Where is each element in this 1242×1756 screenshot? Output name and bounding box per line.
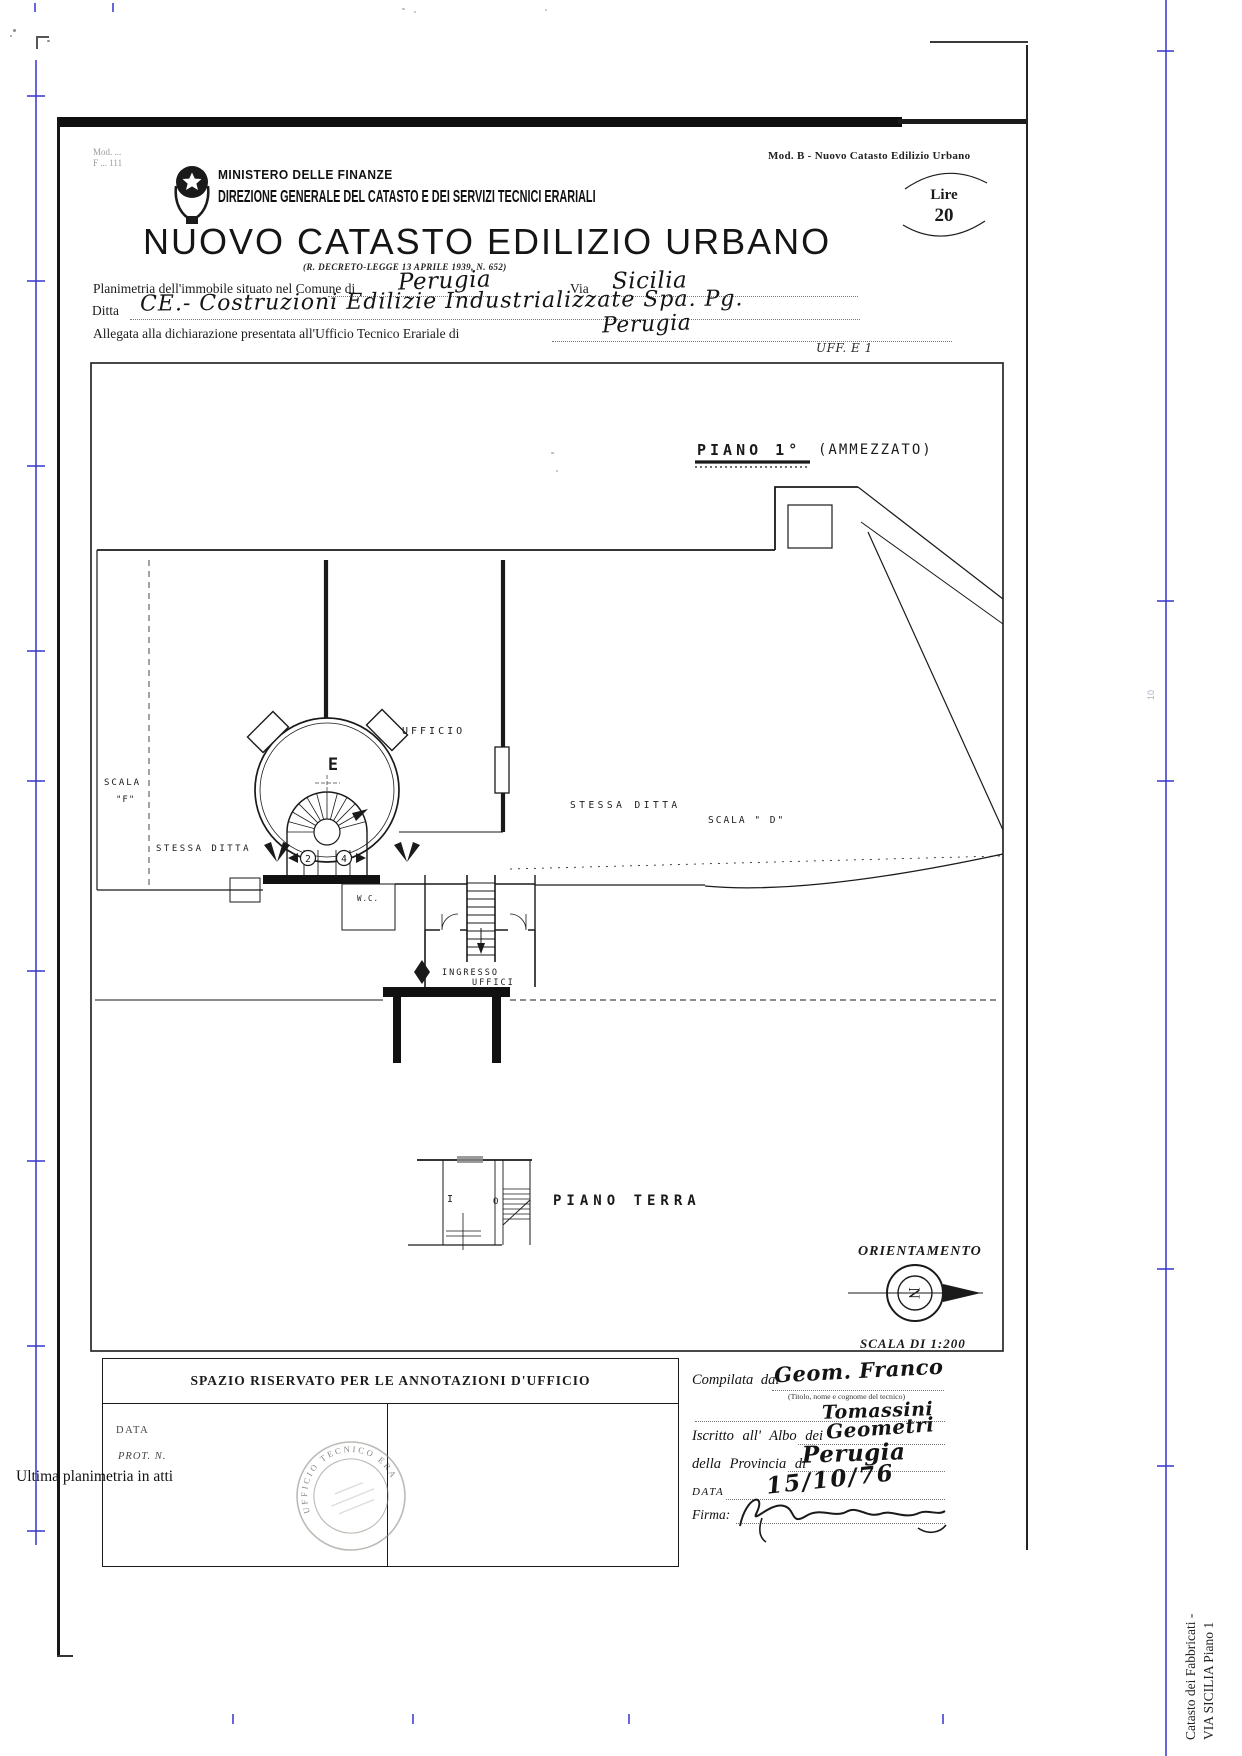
scan-speck (414, 11, 416, 13)
scan-speck (545, 9, 547, 11)
document-title: NUOVO CATASTO EDILIZIO URBANO (143, 221, 831, 263)
left-registration-tick (27, 1345, 45, 1347)
stessa-ditta-left-label: STESSA DITTA (156, 844, 251, 854)
annotations-box-header: SPAZIO RISERVATO PER LE ANNOTAZIONI D'UF… (103, 1359, 678, 1404)
right-ruler-tick (1157, 1465, 1174, 1467)
ditta-dotted-line (130, 319, 860, 320)
scala-f-label-line2: "F" (116, 795, 135, 805)
room-e-label: E (328, 755, 338, 775)
piano-terra-label: PIANO TERRA (553, 1193, 701, 1209)
entry-door-symbol (414, 960, 430, 984)
left-registration-tick (27, 95, 45, 97)
wc-room (342, 884, 395, 930)
directorate-name: DIREZIONE GENERALE DEL CATASTO E DEI SER… (218, 186, 596, 207)
floor-plan-drawing: PIANO 1° (AMMEZZATO) (90, 362, 1004, 1352)
allegata-dotted-line (552, 341, 952, 342)
model-number-line2: F ... 111 (93, 158, 122, 169)
state-emblem-icon (170, 156, 214, 226)
right-ruler-tick (1157, 50, 1174, 52)
office-round-stamp: UFFICIO TECNICO ERARIALE (293, 1438, 415, 1558)
orientation-title: ORIENTAMENTO (858, 1244, 982, 1259)
compass-north-letter: N (905, 1287, 922, 1299)
scala-f-label-line1: SCALA (104, 778, 141, 788)
bottom-registration-tick (628, 1714, 630, 1724)
piano-terra-plan (408, 1160, 532, 1250)
scan-speck (402, 8, 405, 10)
lower-wall-left (393, 997, 401, 1063)
compilata-label: Compilata dal (692, 1372, 779, 1389)
allegata-value: Perugia (602, 310, 692, 338)
annotations-prot-label: PROT. N. (118, 1451, 166, 1462)
piano-terra-i-label: I (447, 1194, 453, 1205)
bottom-registration-tick (942, 1714, 944, 1724)
model-number-line1: Mod. ... (93, 147, 122, 158)
wc-label: W.C. (357, 894, 379, 903)
faint-margin-annotation: 10 (1146, 690, 1156, 700)
left-registration-tick (27, 970, 45, 972)
stessa-ditta-center-label: STESSA DITTA (570, 800, 681, 811)
compass: N (848, 1265, 983, 1321)
bottom-registration-tick (232, 1714, 234, 1724)
arrow-left-icon (288, 853, 298, 863)
floor-title-suffix: (AMMEZZATO) (818, 442, 933, 458)
document-top-border (57, 117, 902, 127)
ingresso-label-line2: UFFICI (472, 978, 515, 988)
ingresso-label-line1: INGRESSO (442, 968, 499, 978)
scan-speck (47, 40, 50, 42)
left-registration-line (35, 60, 37, 1545)
annotations-data-label: DATA (116, 1425, 149, 1436)
door-wing-right (394, 842, 420, 862)
bottom-wall-band (263, 875, 380, 884)
ufficio-label: UFFICIO (402, 726, 465, 737)
compilata-dotted-line (772, 1390, 944, 1391)
margin-caption-line1: Catasto dei Fabbricati - (1182, 1440, 1200, 1740)
lire-label: Lire (930, 187, 958, 203)
unit-number-2: 2 (305, 854, 311, 865)
left-registration-tick (27, 650, 45, 652)
margin-vertical-caption: Catasto dei Fabbricati - VIA SICILIA Pia… (1182, 1440, 1218, 1740)
scan-speck (10, 35, 12, 37)
door-wing-left (264, 842, 290, 862)
bottom-registration-tick (412, 1714, 414, 1724)
right-ruler-tick (1157, 780, 1174, 782)
office-note: UFF. E 1 (816, 341, 873, 355)
stair-down-arrow (477, 943, 485, 954)
document-corner-mark (36, 36, 38, 49)
compass-arrow (943, 1284, 981, 1302)
ditta-label: Ditta (92, 303, 119, 319)
compilata-value: Geom. Franco (773, 1354, 943, 1388)
allegata-label: Allegata alla dichiarazione presentata a… (93, 326, 459, 342)
compiler-data-label: DATA (692, 1486, 724, 1498)
bottom-note: Ultima planimetria in atti (16, 1468, 173, 1486)
window-block-nw (247, 711, 288, 752)
annotations-box-title: SPAZIO RISERVATO PER LE ANNOTAZIONI D'UF… (191, 1373, 591, 1389)
floor-title: PIANO 1° (697, 441, 801, 459)
plan-border (91, 363, 1003, 1351)
arrow-right-icon (356, 853, 366, 863)
document-right-border (1026, 45, 1028, 1550)
lower-wall-right (492, 997, 501, 1063)
document-left-border-foot (57, 1655, 73, 1657)
document-left-border (57, 117, 60, 1657)
scanned-cadastral-document: 10 Mod. ... F ... 111 MINISTERO DELLE FI… (0, 0, 1242, 1756)
margin-caption-line2: VIA SICILIA Piano 1 (1200, 1440, 1218, 1740)
model-number-right: Mod. B - Nuovo Catasto Edilizio Urbano (768, 150, 970, 162)
firma-label: Firma: (692, 1507, 730, 1523)
piano-terra-o-label: O (493, 1197, 498, 1207)
left-registration-tick (27, 780, 45, 782)
ministry-name: MINISTERO DELLE FINANZE (218, 167, 393, 182)
scale-note: SCALA DI 1:200 (860, 1336, 966, 1351)
document-top-border-thin (898, 119, 1028, 124)
right-ruler-tick (1157, 1268, 1174, 1270)
left-registration-tick (27, 465, 45, 467)
lire-stamp: Lire 20 (895, 163, 995, 245)
document-corner-mark (930, 41, 1028, 43)
left-registration-tick (27, 280, 45, 282)
right-ruler-line (1165, 0, 1167, 1756)
plan-walls (95, 487, 1003, 1000)
lire-value: 20 (935, 205, 954, 226)
center-cross-mark (315, 775, 340, 793)
right-ruler-tick (1157, 600, 1174, 602)
left-registration-tick (27, 1530, 45, 1532)
piano-terra-lintel (457, 1156, 483, 1163)
top-registration-tick (112, 3, 114, 12)
signature-scribble (732, 1488, 952, 1546)
model-number-left: Mod. ... F ... 111 (93, 147, 122, 169)
top-registration-tick (34, 3, 36, 12)
scan-speck (13, 29, 16, 32)
scala-d-label: SCALA " D" (708, 815, 785, 826)
left-registration-tick (27, 1160, 45, 1162)
unit-number-4: 4 (341, 854, 347, 865)
window-block-east (495, 747, 509, 793)
entry-threshold-band (383, 987, 510, 997)
